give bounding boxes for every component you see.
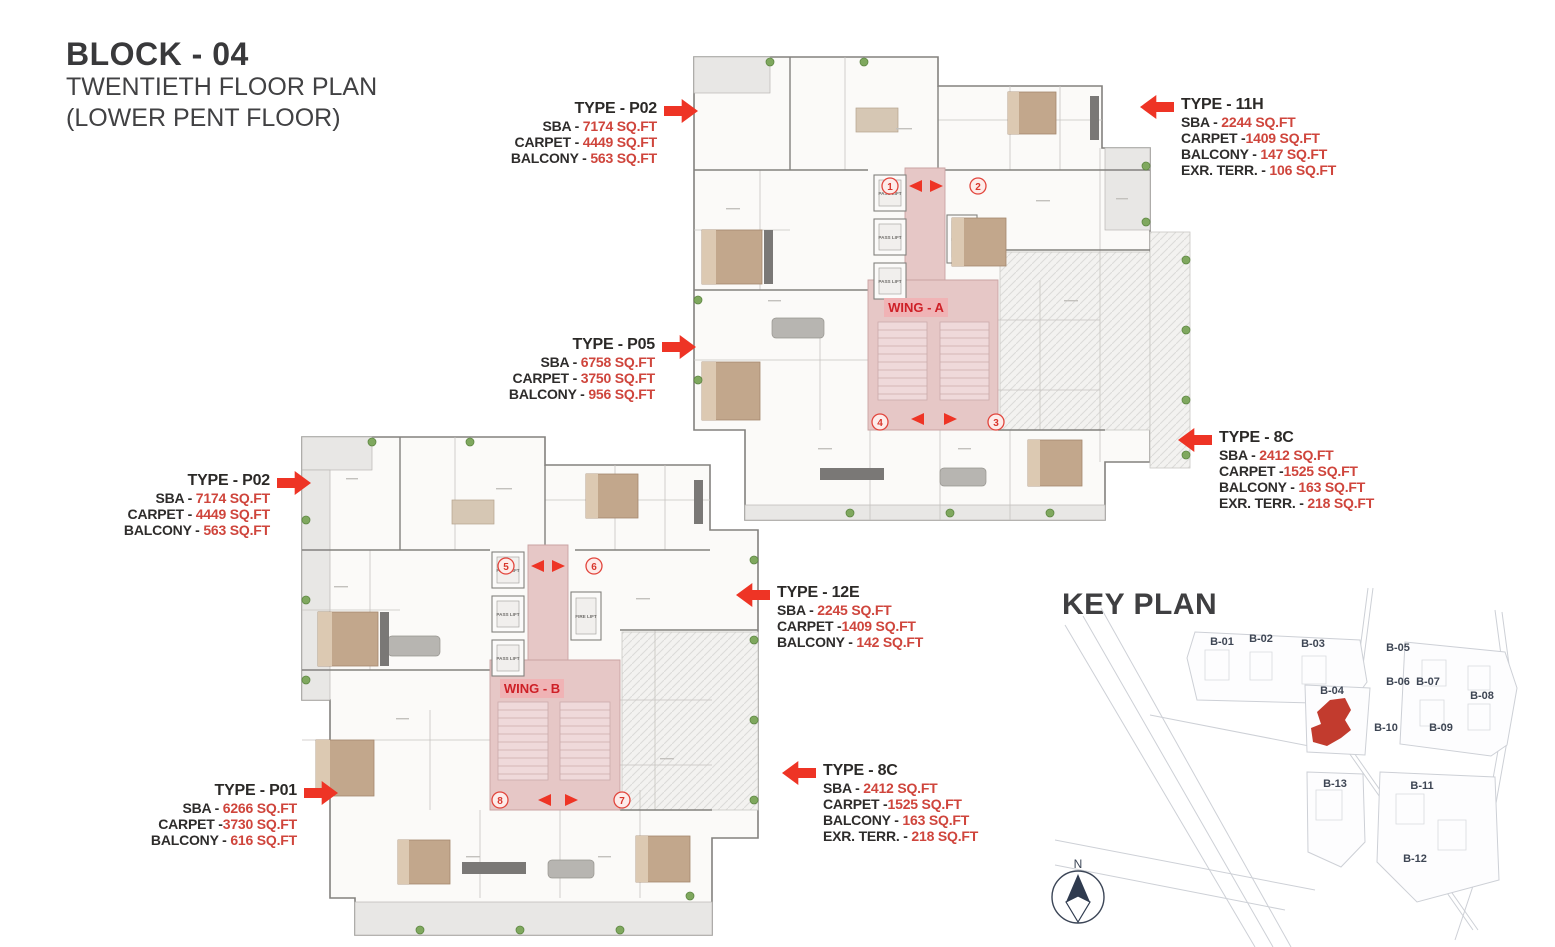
arrow-left-icon <box>782 760 816 786</box>
area-label: BALCONY - <box>124 522 203 538</box>
area-row: EXR. TERR. - 106 SQ.FT <box>1181 162 1336 178</box>
unit-type-card-11h: TYPE - 11H SBA - 2244 SQ.FT CARPET -1409… <box>1140 96 1336 178</box>
corridor <box>528 545 568 660</box>
area-row: BALCONY - 163 SQ.FT <box>1219 479 1374 495</box>
unit-type-card-p02-top: TYPE - P02 SBA - 7174 SQ.FT CARPET - 444… <box>485 100 698 166</box>
area-row: SBA - 2244 SQ.FT <box>1181 114 1336 130</box>
area-value: 7174 SQ.FT <box>583 118 657 134</box>
keyplan-block-label: B-12 <box>1403 853 1427 865</box>
area-value: 616 SQ.FT <box>230 832 297 848</box>
unit-type-title: TYPE - 12E <box>777 584 923 602</box>
area-label: SBA - <box>182 800 222 816</box>
wing-b-label: WING - B <box>504 681 560 696</box>
area-label: CARPET - <box>777 618 842 634</box>
area-value: 563 SQ.FT <box>203 522 270 538</box>
area-value: 163 SQ.FT <box>1298 479 1365 495</box>
area-value: 163 SQ.FT <box>902 812 969 828</box>
keyplan-map: B-01 B-02 B-03 B-05 B-06 B-07 B-08 B-04 … <box>1040 580 1555 947</box>
area-label: SBA - <box>542 118 582 134</box>
arrow-right-icon <box>277 470 311 496</box>
keyplan-block-label: B-11 <box>1410 780 1433 792</box>
area-row: EXR. TERR. - 218 SQ.FT <box>1219 495 1374 511</box>
svg-text:PASS LIFT: PASS LIFT <box>496 612 519 617</box>
arrow-right-icon <box>304 780 338 806</box>
svg-text:FIRE LIFT: FIRE LIFT <box>575 614 597 619</box>
area-value: 4449 SQ.FT <box>196 506 270 522</box>
area-label: EXR. TERR. - <box>1219 495 1307 511</box>
pass-lift: PASS LIFT <box>874 263 906 299</box>
area-row: SBA - 7174 SQ.FT <box>485 118 657 134</box>
unit-type-card-12e: TYPE - 12E SBA - 2245 SQ.FT CARPET -1409… <box>736 584 923 650</box>
area-row: BALCONY - 142 SQ.FT <box>777 634 923 650</box>
area-label: CARPET - <box>515 134 583 150</box>
area-row: SBA - 2412 SQ.FT <box>1219 447 1374 463</box>
area-value: 1409 SQ.FT <box>1246 130 1320 146</box>
area-row: CARPET - 3750 SQ.FT <box>485 370 655 386</box>
unit-number-7: 7 <box>614 792 630 808</box>
area-row: CARPET -3730 SQ.FT <box>125 816 297 832</box>
area-label: BALCONY - <box>1181 146 1260 162</box>
area-value: 2244 SQ.FT <box>1221 114 1295 130</box>
unit-type-title: TYPE - P02 <box>98 472 270 490</box>
keyplan-block-label: B-06 <box>1386 676 1410 688</box>
area-value: 6758 SQ.FT <box>581 354 655 370</box>
area-row: BALCONY - 563 SQ.FT <box>98 522 270 538</box>
area-label: SBA - <box>1219 447 1259 463</box>
area-value: 2412 SQ.FT <box>1259 447 1333 463</box>
area-row: SBA - 6758 SQ.FT <box>485 354 655 370</box>
area-value: 956 SQ.FT <box>588 386 655 402</box>
keyplan-clusters <box>1187 632 1517 902</box>
arrow-right-icon <box>662 334 696 360</box>
pass-lift: PASS LIFT <box>492 596 524 632</box>
area-row: BALCONY - 616 SQ.FT <box>125 832 297 848</box>
svg-text:PASS LIFT: PASS LIFT <box>878 235 901 240</box>
area-label: CARPET - <box>128 506 196 522</box>
area-row: CARPET -1525 SQ.FT <box>1219 463 1374 479</box>
area-row: BALCONY - 563 SQ.FT <box>485 150 657 166</box>
arrow-left-icon <box>736 582 770 608</box>
area-value: 106 SQ.FT <box>1269 162 1336 178</box>
area-row: EXR. TERR. - 218 SQ.FT <box>823 828 978 844</box>
svg-text:PASS LIFT: PASS LIFT <box>496 656 519 661</box>
unit-type-card-p02-left: TYPE - P02 SBA - 7174 SQ.FT CARPET - 444… <box>98 472 311 538</box>
svg-text:PASS LIFT: PASS LIFT <box>878 279 901 284</box>
area-label: EXR. TERR. - <box>823 828 911 844</box>
arrow-left-icon <box>1178 427 1212 453</box>
area-value: 7174 SQ.FT <box>196 490 270 506</box>
compass-north-label: N <box>1074 857 1083 871</box>
arrow-right-icon <box>664 98 698 124</box>
keyplan-block-label: B-13 <box>1323 778 1347 790</box>
area-value: 3730 SQ.FT <box>223 816 297 832</box>
fire-lift: FIRE LIFT <box>571 592 601 640</box>
svg-text:4: 4 <box>877 418 883 429</box>
area-label: SBA - <box>823 780 863 796</box>
block-title: BLOCK - 04 <box>66 36 377 72</box>
area-label: BALCONY - <box>511 150 590 166</box>
area-value: 4449 SQ.FT <box>583 134 657 150</box>
terrace <box>1000 252 1150 430</box>
unit-type-title: TYPE - 11H <box>1181 96 1336 114</box>
area-row: CARPET -1409 SQ.FT <box>1181 130 1336 146</box>
area-label: CARPET - <box>158 816 223 832</box>
keyplan-block-label: B-09 <box>1429 722 1453 734</box>
unit-number-8: 8 <box>492 792 508 808</box>
unit-number-5: 5 <box>498 558 514 574</box>
area-label: BALCONY - <box>151 832 230 848</box>
svg-text:8: 8 <box>497 796 503 807</box>
area-label: SBA - <box>540 354 580 370</box>
area-label: BALCONY - <box>1219 479 1298 495</box>
floor-subtitle: (LOWER PENT FLOOR) <box>66 103 377 134</box>
area-row: SBA - 2245 SQ.FT <box>777 602 923 618</box>
wing-a-label: WING - A <box>888 300 944 315</box>
area-row: SBA - 6266 SQ.FT <box>125 800 297 816</box>
unit-type-card-8c-right: TYPE - 8C SBA - 2412 SQ.FT CARPET -1525 … <box>1178 429 1374 511</box>
page-title: BLOCK - 04 TWENTIETH FLOOR PLAN (LOWER P… <box>66 36 377 134</box>
keyplan-block-label: B-08 <box>1470 690 1494 702</box>
area-value: 563 SQ.FT <box>590 150 657 166</box>
unit-number-2: 2 <box>970 178 986 194</box>
wing-b-plan: PASS LIFT PASS LIFT PASS LIFT FIRE LIFT … <box>302 437 758 935</box>
area-label: CARPET - <box>823 796 888 812</box>
pass-lift: PASS LIFT <box>874 219 906 255</box>
wing-a-plan: PASS LIFT PASS LIFT PASS LIFT FIRE LIFT … <box>694 57 1190 520</box>
unit-number-6: 6 <box>586 558 602 574</box>
pass-lift: PASS LIFT <box>492 640 524 676</box>
compass-icon: N <box>1052 857 1104 923</box>
unit-type-title: TYPE - P05 <box>485 336 655 354</box>
area-value: 3750 SQ.FT <box>581 370 655 386</box>
area-value: 1525 SQ.FT <box>888 796 962 812</box>
area-label: SBA - <box>777 602 817 618</box>
area-row: SBA - 7174 SQ.FT <box>98 490 270 506</box>
area-label: CARPET - <box>513 370 581 386</box>
area-label: BALCONY - <box>823 812 902 828</box>
svg-text:2: 2 <box>975 182 981 193</box>
unit-type-card-p05: TYPE - P05 SBA - 6758 SQ.FT CARPET - 375… <box>485 336 696 402</box>
keyplan-block-label: B-05 <box>1386 642 1410 654</box>
area-row: CARPET -1525 SQ.FT <box>823 796 978 812</box>
svg-text:3: 3 <box>993 418 999 429</box>
area-value: 2245 SQ.FT <box>817 602 891 618</box>
svg-text:1: 1 <box>887 182 893 193</box>
area-label: BALCONY - <box>777 634 856 650</box>
arrow-left-icon <box>1140 94 1174 120</box>
area-label: EXR. TERR. - <box>1181 162 1269 178</box>
balcony <box>355 902 712 935</box>
balcony <box>694 57 770 93</box>
area-row: BALCONY - 163 SQ.FT <box>823 812 978 828</box>
keyplan-block-label: B-10 <box>1374 722 1398 734</box>
svg-text:7: 7 <box>619 796 625 807</box>
unit-type-title: TYPE - 8C <box>1219 429 1374 447</box>
unit-type-card-p01: TYPE - P01 SBA - 6266 SQ.FT CARPET -3730… <box>125 782 338 848</box>
area-value: 1525 SQ.FT <box>1284 463 1358 479</box>
area-row: BALCONY - 956 SQ.FT <box>485 386 655 402</box>
svg-text:5: 5 <box>503 562 509 573</box>
area-value: 1409 SQ.FT <box>842 618 916 634</box>
area-label: SBA - <box>155 490 195 506</box>
area-row: BALCONY - 147 SQ.FT <box>1181 146 1336 162</box>
area-label: BALCONY - <box>509 386 588 402</box>
area-row: SBA - 2412 SQ.FT <box>823 780 978 796</box>
area-row: CARPET - 4449 SQ.FT <box>485 134 657 150</box>
keyplan-block-label: B-01 <box>1210 636 1234 648</box>
terrace <box>622 632 758 810</box>
area-value: 6266 SQ.FT <box>223 800 297 816</box>
area-label: CARPET - <box>1219 463 1284 479</box>
balcony <box>302 437 372 470</box>
svg-text:6: 6 <box>591 562 597 573</box>
keyplan-block-label: B-04 <box>1320 685 1345 697</box>
keyplan-block-label: B-03 <box>1301 638 1325 650</box>
keyplan-block-label: B-07 <box>1416 676 1440 688</box>
area-label: SBA - <box>1181 114 1221 130</box>
unit-number-4: 4 <box>872 414 888 430</box>
area-label: CARPET - <box>1181 130 1246 146</box>
unit-type-title: TYPE - 8C <box>823 762 978 780</box>
keyplan-block-label: B-02 <box>1249 633 1273 645</box>
area-value: 218 SQ.FT <box>1307 495 1374 511</box>
area-value: 218 SQ.FT <box>911 828 978 844</box>
unit-type-title: TYPE - P02 <box>485 100 657 118</box>
unit-number-1: 1 <box>882 178 898 194</box>
floor-title: TWENTIETH FLOOR PLAN <box>66 72 377 103</box>
area-value: 142 SQ.FT <box>856 634 923 650</box>
unit-number-3: 3 <box>988 414 1004 430</box>
area-value: 147 SQ.FT <box>1260 146 1327 162</box>
unit-type-card-8c-bottom: TYPE - 8C SBA - 2412 SQ.FT CARPET -1525 … <box>782 762 978 844</box>
area-row: CARPET - 4449 SQ.FT <box>98 506 270 522</box>
area-value: 2412 SQ.FT <box>863 780 937 796</box>
unit-type-title: TYPE - P01 <box>125 782 297 800</box>
area-row: CARPET -1409 SQ.FT <box>777 618 923 634</box>
